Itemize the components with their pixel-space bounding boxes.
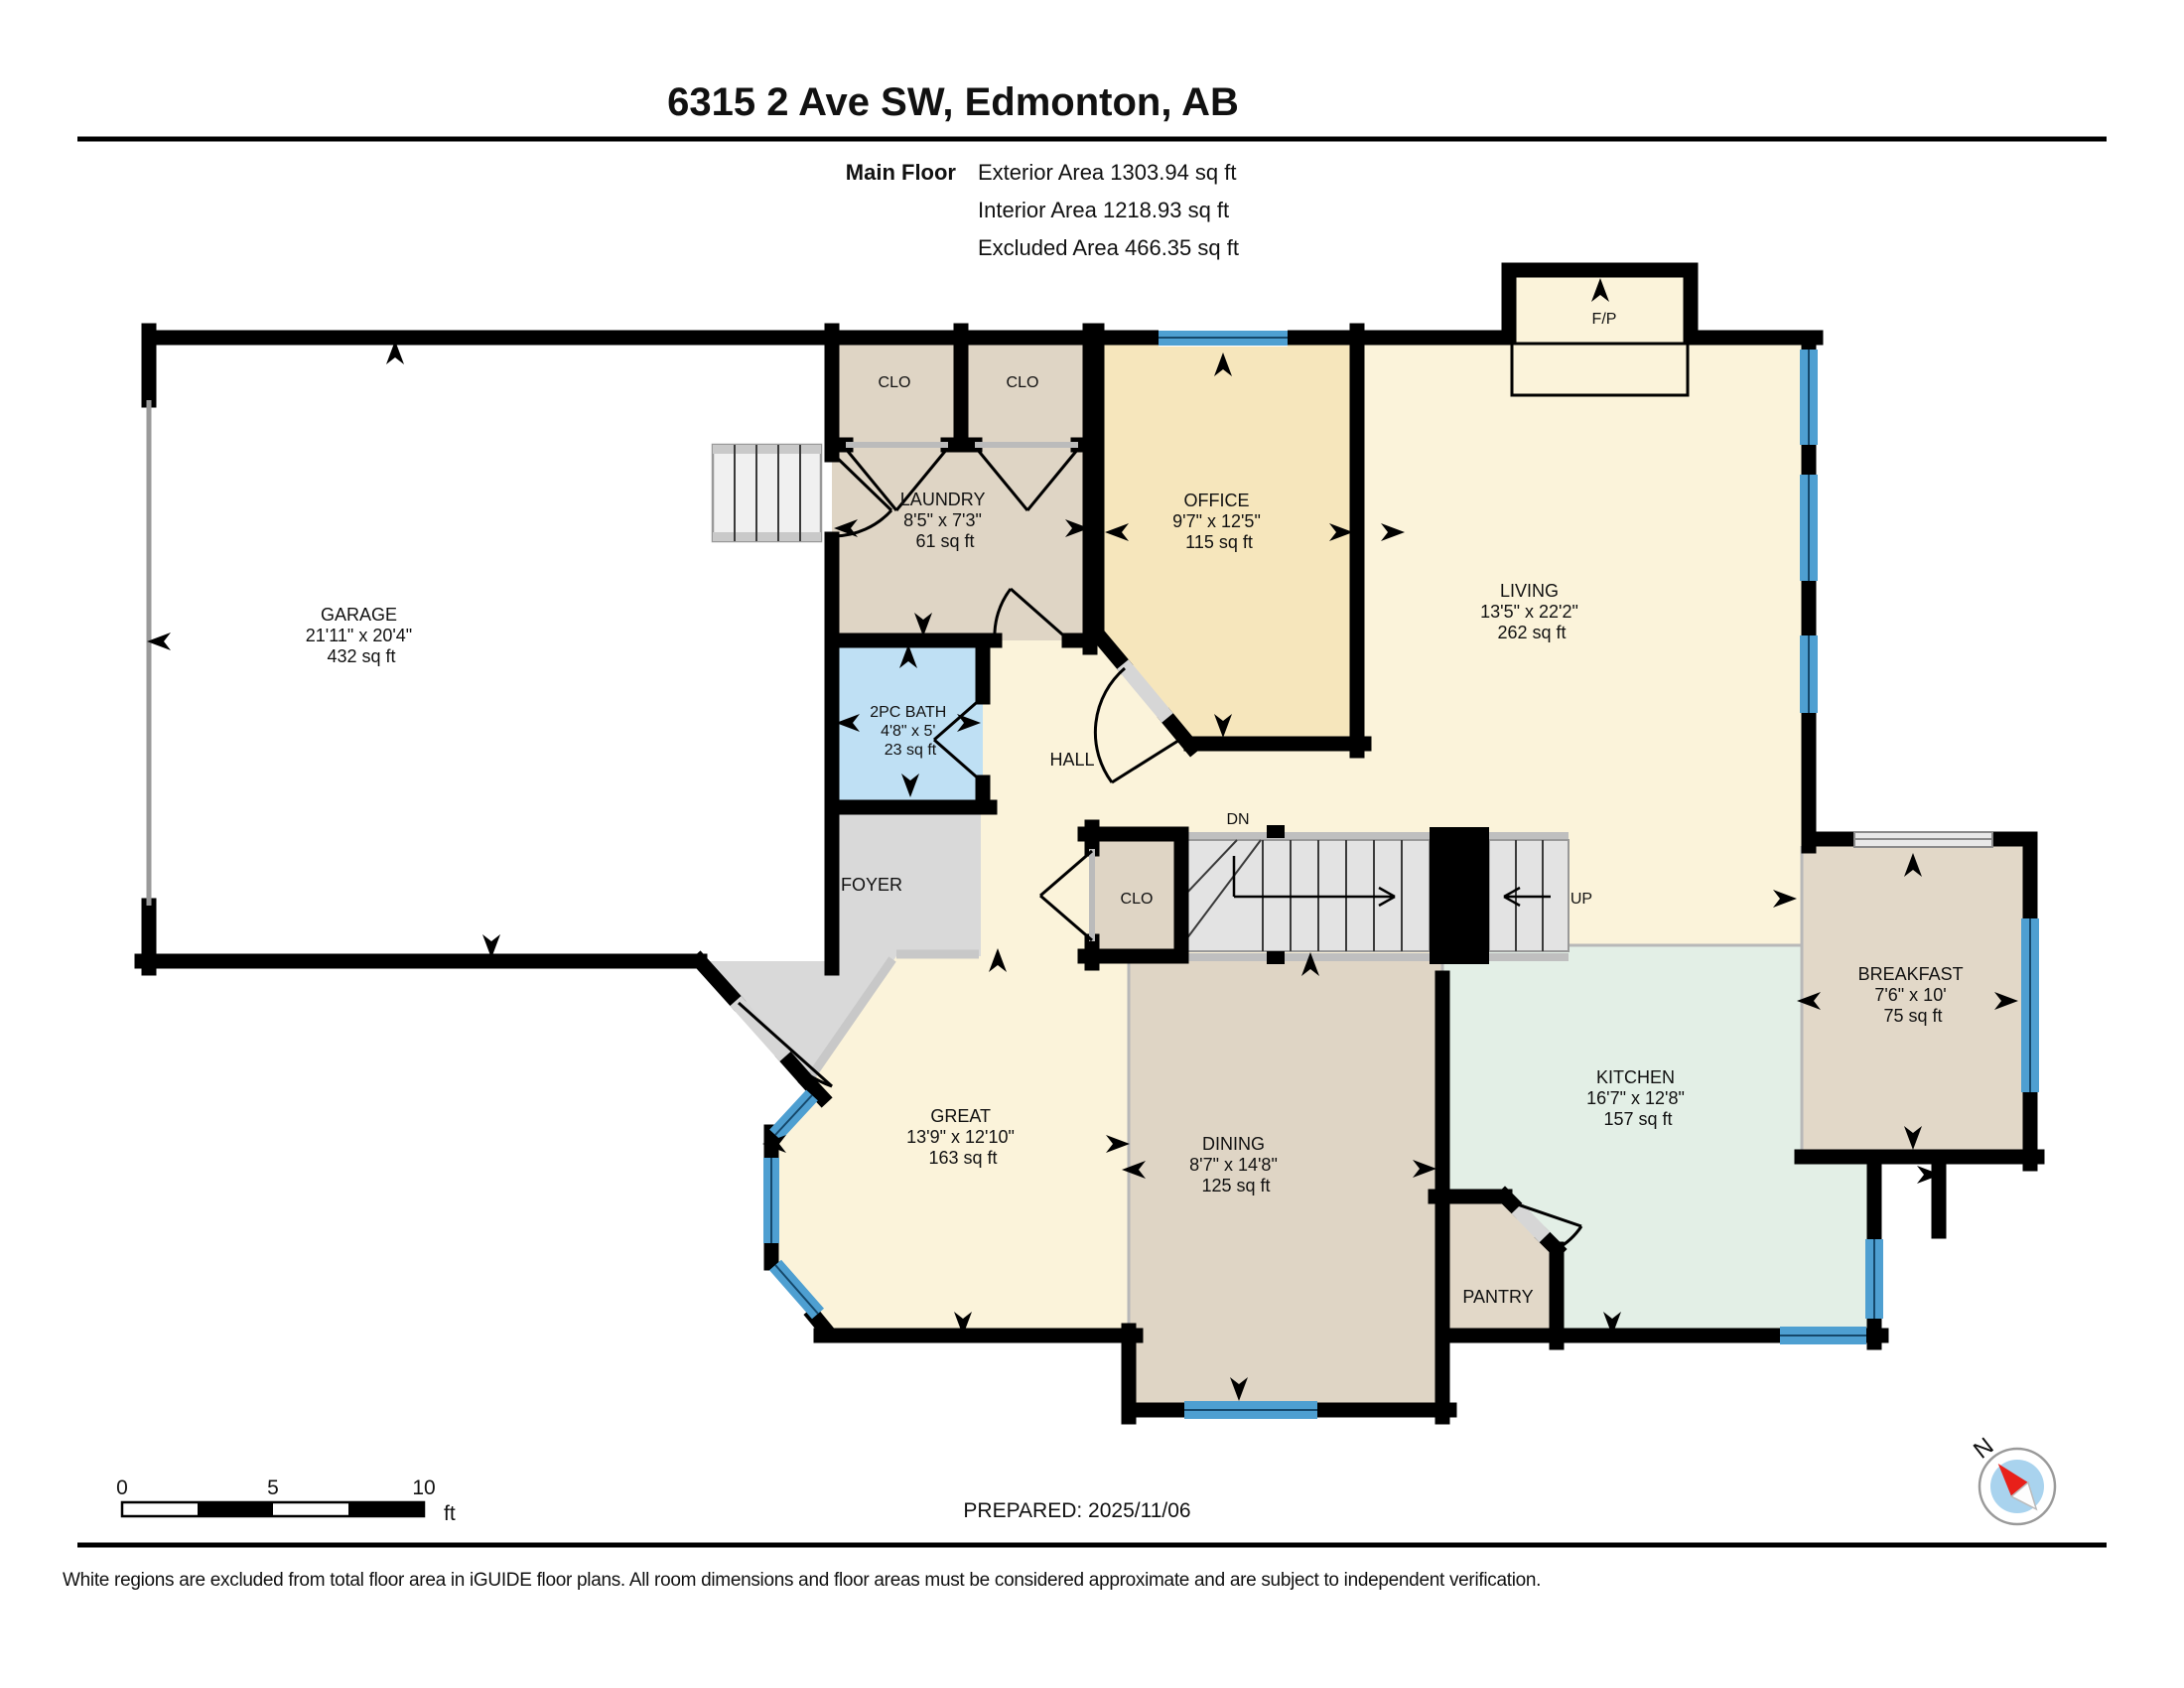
page-title: 6315 2 Ave SW, Edmonton, AB — [667, 80, 1239, 124]
stairs-up-label: UP — [1570, 891, 1592, 908]
foyer-label: FOYER — [841, 875, 902, 895]
room-dining-floor — [1129, 955, 1442, 1410]
scale-tick-5: 5 — [267, 1477, 279, 1499]
breakfast-sliding-door — [1854, 832, 1992, 847]
hall-label: HALL — [1049, 750, 1094, 770]
stairs-divider-wall — [1430, 827, 1489, 964]
excluded-area: Excluded Area 466.35 sq ft — [978, 235, 1239, 260]
office-window — [1159, 329, 1288, 347]
disclaimer-text: White regions are excluded from total fl… — [63, 1570, 1541, 1591]
compass: N — [1969, 1433, 2055, 1524]
closet-right-label: CLO — [1007, 374, 1039, 391]
closet-left-label: CLO — [879, 374, 911, 391]
kitchen-window-east — [1865, 1239, 1883, 1319]
floorplan-canvas: 6315 2 Ave SW, Edmonton, AB Main Floor E… — [0, 0, 2184, 1688]
stair-closet-label: CLO — [1121, 891, 1154, 908]
floor-label: Main Floor — [846, 160, 957, 185]
pantry-label: PANTRY — [1462, 1287, 1533, 1307]
prepared-date: PREPARED: 2025/11/06 — [963, 1499, 1190, 1522]
kitchen-window-south — [1780, 1327, 1866, 1344]
fireplace-label: F/P — [1592, 311, 1617, 328]
living-window-1 — [1800, 350, 1818, 445]
exterior-area: Exterior Area 1303.94 sq ft — [978, 160, 1237, 185]
office-label: OFFICE 9'7" x 12'5" 115 sq ft — [1172, 491, 1266, 552]
stairs-down-label: DN — [1226, 811, 1249, 828]
breakfast-window-east — [2021, 918, 2039, 1092]
garage-stairs — [713, 445, 821, 541]
interior-area: Interior Area 1218.93 sq ft — [978, 198, 1229, 222]
living-window-3 — [1800, 635, 1818, 713]
room-garage-floor — [149, 338, 832, 961]
living-window-2 — [1800, 475, 1818, 581]
dining-label: DINING 8'7" x 14'8" 125 sq ft — [1189, 1134, 1283, 1196]
main-stairs — [1181, 825, 1569, 964]
scale-unit: ft — [444, 1502, 456, 1525]
scale-bar: 0 5 10 ft — [116, 1477, 456, 1525]
scale-tick-10: 10 — [412, 1477, 435, 1499]
floorplan-page: 6315 2 Ave SW, Edmonton, AB Main Floor E… — [0, 0, 2184, 1688]
scale-tick-0: 0 — [116, 1477, 128, 1499]
dining-window-south — [1184, 1401, 1317, 1419]
header: 6315 2 Ave SW, Edmonton, AB Main Floor E… — [77, 80, 2107, 260]
